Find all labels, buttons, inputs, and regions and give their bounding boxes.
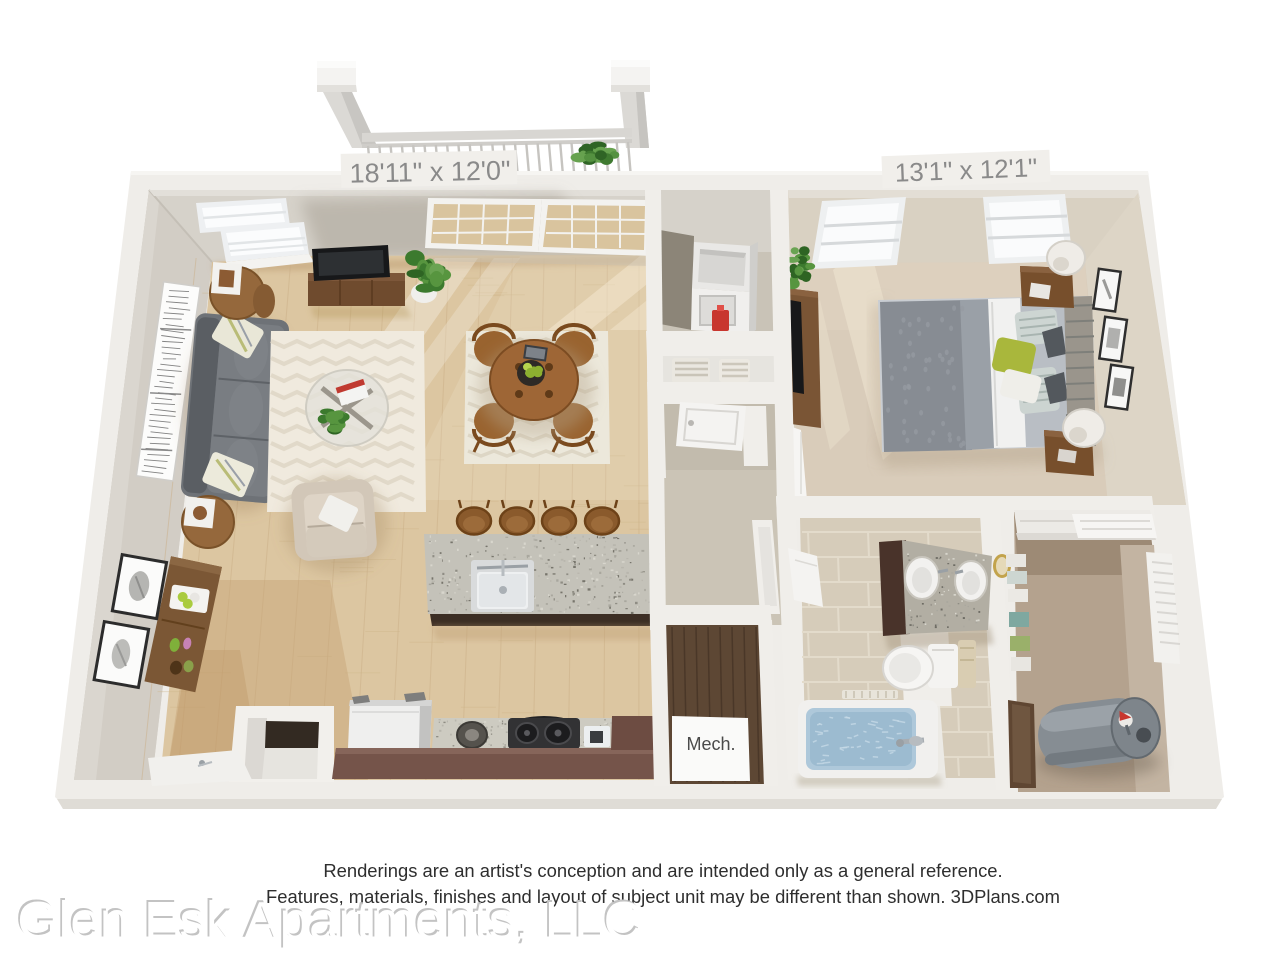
svg-text:13'1" x 12'1": 13'1" x 12'1" [894,152,1038,187]
svg-text:18'11" x 12'0": 18'11" x 12'0" [349,155,511,188]
svg-text:Renderings are an artist's con: Renderings are an artist's conception an… [323,860,1002,881]
svg-text:Mech.: Mech. [686,734,735,754]
svg-text:Glen Esk Apartments, LLC: Glen Esk Apartments, LLC [17,891,642,950]
